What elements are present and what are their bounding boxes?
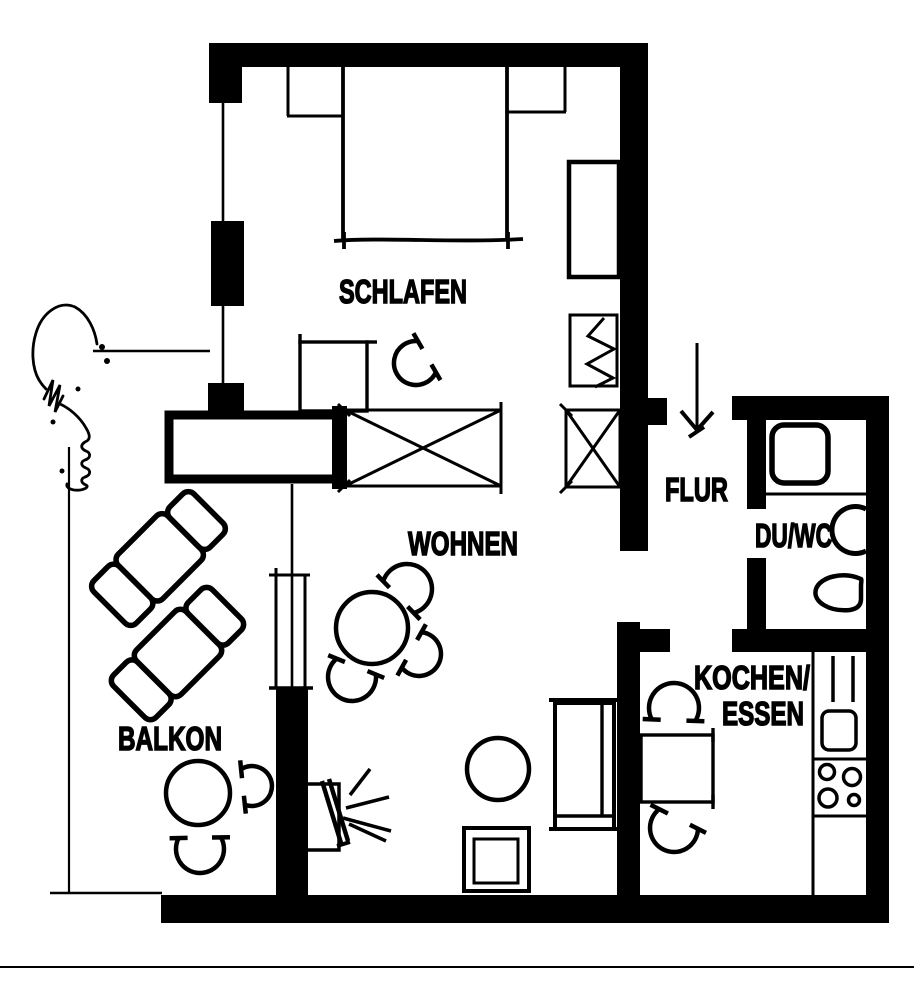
svg-text:FLUR: FLUR (665, 471, 728, 508)
svg-text:KOCHEN/: KOCHEN/ (694, 659, 810, 696)
svg-text:DU/WC: DU/WC (755, 517, 832, 554)
svg-text:SCHLAFEN: SCHLAFEN (339, 273, 467, 310)
svg-text:BALKON: BALKON (118, 720, 222, 757)
svg-text:WOHNEN: WOHNEN (408, 525, 518, 562)
svg-text:ESSEN: ESSEN (722, 695, 804, 732)
